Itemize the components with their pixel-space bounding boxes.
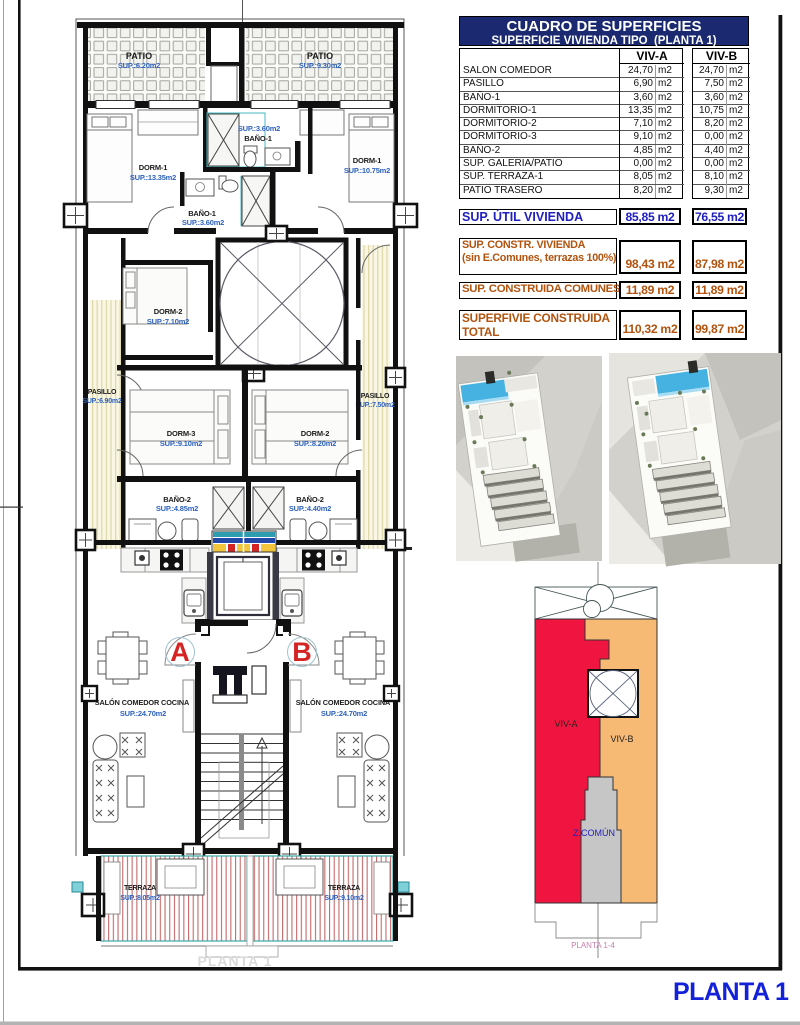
svg-text:DORM-1: DORM-1	[139, 163, 167, 172]
svg-text:DORM-1: DORM-1	[353, 156, 381, 165]
svg-text:SUP.:6.90m2: SUP.:6.90m2	[82, 398, 122, 405]
svg-text:SUP.:3.60m2: SUP.:3.60m2	[238, 124, 280, 133]
svg-text:DORM-3: DORM-3	[167, 429, 195, 438]
svg-text:SUP.:8.05m2: SUP.:8.05m2	[120, 895, 160, 902]
svg-text:BAÑO-2: BAÑO-2	[296, 495, 324, 504]
svg-text:SUP.:24.70m2: SUP.:24.70m2	[321, 709, 367, 718]
svg-text:SUP.:24.70m2: SUP.:24.70m2	[120, 709, 166, 718]
svg-text:BAÑO-1: BAÑO-1	[188, 209, 216, 218]
svg-text:TERRAZA: TERRAZA	[328, 885, 360, 892]
svg-text:PLANTA 1: PLANTA 1	[198, 953, 273, 969]
svg-text:SUP.:9.30m2: SUP.:9.30m2	[299, 61, 341, 70]
svg-text:BAÑO-2: BAÑO-2	[163, 495, 191, 504]
svg-text:SALÓN COMEDOR COCINA: SALÓN COMEDOR COCINA	[95, 698, 190, 707]
svg-text:PATIO: PATIO	[126, 51, 152, 61]
svg-text:SUP.:8.20m2: SUP.:8.20m2	[294, 439, 336, 448]
svg-text:PLANTA 1-4: PLANTA 1-4	[571, 941, 615, 950]
svg-text:SUP.:6.20m2: SUP.:6.20m2	[118, 61, 160, 70]
svg-text:Z.COMÚN: Z.COMÚN	[573, 828, 615, 838]
svg-text:PATIO: PATIO	[307, 51, 333, 61]
svg-text:BAÑO-1: BAÑO-1	[244, 134, 272, 143]
svg-text:SUP.:4.40m2: SUP.:4.40m2	[289, 504, 331, 513]
svg-text:SUP.:4.85m2: SUP.:4.85m2	[156, 504, 198, 513]
svg-text:SUP.:3.60m2: SUP.:3.60m2	[182, 218, 224, 227]
svg-text:PASILLO: PASILLO	[88, 389, 117, 396]
svg-text:SUP.:10.75m2: SUP.:10.75m2	[344, 166, 390, 175]
svg-text:SUP.:9.10m2: SUP.:9.10m2	[324, 895, 364, 902]
svg-text:SUP.:13.35m2: SUP.:13.35m2	[130, 173, 176, 182]
svg-text:SUP.:9.10m2: SUP.:9.10m2	[160, 439, 202, 448]
svg-text:A: A	[170, 637, 190, 667]
svg-text:SUP.:7.50m2: SUP.:7.50m2	[355, 402, 395, 409]
svg-text:TERRAZA: TERRAZA	[124, 885, 156, 892]
svg-text:PASILLO: PASILLO	[361, 393, 390, 400]
svg-text:DORM-2: DORM-2	[154, 307, 182, 316]
svg-text:SALÓN COMEDOR COCINA: SALÓN COMEDOR COCINA	[296, 698, 391, 707]
svg-text:VIV-B: VIV-B	[610, 734, 633, 744]
svg-text:SUP.:7.10m2: SUP.:7.10m2	[147, 317, 189, 326]
svg-text:B: B	[292, 637, 312, 667]
svg-text:DORM-2: DORM-2	[301, 429, 329, 438]
svg-text:VIV-A: VIV-A	[554, 719, 577, 729]
